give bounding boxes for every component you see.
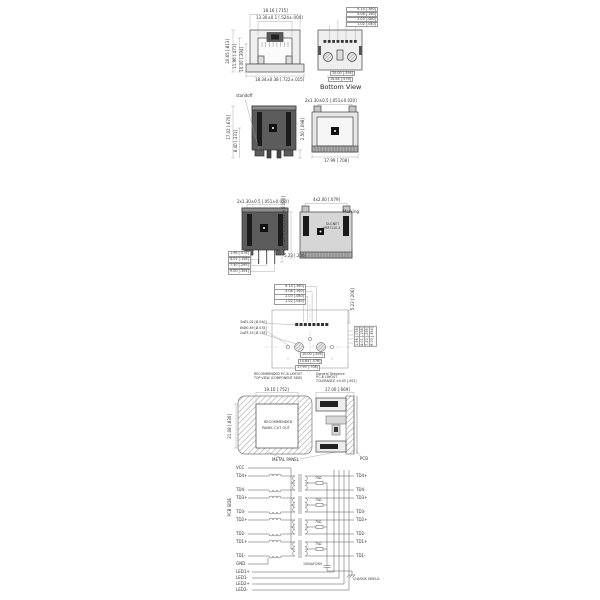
- pin-td1p-right: TD1+: [356, 540, 367, 545]
- pin-td4p-left: TD4+: [236, 474, 247, 479]
- marking-callout: Marking: [343, 210, 359, 215]
- pcb-note-left-2: TOP VIEW (COMPONENT SIDE): [254, 377, 302, 381]
- marking-text-line2: JHM7110-4: [323, 227, 340, 231]
- sideview-dim-mid: 8.40 [.331]: [234, 130, 239, 152]
- rearview-dim-top: 2x1.30±0.5 [.051±0.020]: [305, 99, 357, 104]
- pin-td2m-left: TD2-: [236, 532, 246, 537]
- panel-cutout-line2: PANEL CUT OUT: [262, 426, 290, 430]
- pcb-dim-right-top: 5.23 [.206]: [351, 288, 356, 310]
- front-dim-left-opening: 10.00 [.394]: [240, 47, 245, 72]
- schematic-lines: [248, 468, 355, 590]
- pcb-layout-pads: [295, 323, 328, 326]
- sideview2-dim-4: 9.00 [.354]: [228, 269, 251, 275]
- markingview-dim-left: 4x7.40±0.5 [.291±0.020]: [282, 196, 287, 251]
- panel-cutout-right: [316, 396, 357, 454]
- pin-gnd: GND: [236, 562, 245, 567]
- pin-td3p-right: TD3+: [356, 496, 367, 501]
- resistor-note-1: 75Ω: [315, 477, 322, 481]
- pcb-callout-2: 8xØ0.89 [Ø.035]: [240, 327, 267, 331]
- front-dim-left-body: 11.96 [.471]: [233, 44, 238, 69]
- pin-led2m: LED2-: [236, 588, 248, 593]
- rear-view-dimlines-top: [318, 104, 352, 110]
- chassis-shield-label: CHASSIS SHIELD: [353, 578, 379, 582]
- pin-td3m-left: TD3-: [236, 510, 246, 515]
- schematic-pcb-side-label: PCB SIDE: [228, 498, 233, 517]
- side-view-body: [252, 106, 296, 158]
- pcb-callout-3: 2xØ3.25 [Ø.128]: [240, 332, 267, 336]
- panel-dim-top-left: 19.10 [.752]: [264, 388, 289, 393]
- bottomview-dim-4: 1.02 [.040]: [348, 23, 376, 27]
- pcb-dim-bottom-3: 17.99 [.708]: [295, 365, 320, 371]
- pin-td1p-left: TD1+: [236, 540, 247, 545]
- resistor-note-2: 75Ω: [315, 499, 322, 503]
- pcb-label: PCB: [360, 457, 368, 462]
- pcb-callout-1: 3xØ1.02 [Ø.040]: [240, 321, 267, 325]
- pin-td2p-right: TD2+: [356, 518, 367, 523]
- bottom-view-caption: Bottom View: [320, 84, 361, 91]
- pcb-dim-right-4: 9.00 [.354]: [369, 326, 377, 347]
- pcb-dim-bottom-1: 10.00 [.394]: [300, 352, 325, 358]
- pin-td2p-left: TD2+: [236, 518, 247, 523]
- sideview-dim-height: 17.02 [.670]: [227, 115, 232, 140]
- pcb-dim-top-4: 1.02 [.040]: [276, 300, 304, 304]
- pcb-dim-bottom-2: 14.64 [.576]: [298, 359, 323, 365]
- resistor-note-3: 75Ω: [315, 521, 322, 525]
- pin-td4p-right: TD4+: [356, 474, 367, 479]
- panel-cutout-left: [238, 396, 312, 454]
- pin-led1p: LED1+: [236, 570, 250, 575]
- pin-td2m-right: TD2-: [356, 532, 366, 537]
- front-dim-bottom-width: 18.34±0.38 [.722±.015]: [255, 78, 304, 83]
- standoff-label: standoff: [236, 94, 252, 99]
- panel-dim-left: 21.08 [.830]: [228, 414, 233, 439]
- datasheet-drawing-page: 18.16 [.715] 13.30±0.1 [.524±.004] 20.65…: [0, 0, 600, 600]
- sideview2-dim-right: 5.23 [.206]: [284, 254, 306, 259]
- cap-note: 1000pF/2KV: [303, 563, 322, 567]
- pcb-note-right-3: TOLERANCE ±0.05 [.002]: [316, 380, 357, 384]
- pin-td4m-left: TD4-: [236, 488, 246, 493]
- pin-td1m-left: TD1-: [236, 554, 246, 559]
- metal-panel-label: METAL PANEL: [272, 458, 299, 463]
- front-view-body: [246, 30, 304, 72]
- pin-vcc: VCC: [236, 466, 244, 471]
- front-dim-top-opening: 13.30±0.1 [.524±.004]: [256, 16, 303, 21]
- sideview-dim-standoff: 2.50 [.098]: [301, 118, 306, 140]
- pin-led1m: LED1-: [236, 576, 248, 581]
- front-dim-top-width: 18.16 [.715]: [263, 9, 288, 14]
- pin-td3p-left: TD3+: [236, 496, 247, 501]
- pin-td1m-right: TD1-: [356, 554, 366, 559]
- rearview-dim-width: 17.99 [.708]: [324, 159, 349, 164]
- markingview-dim-top: 4x2.00 [.079]: [313, 198, 340, 203]
- pin-td3m-right: TD3-: [356, 510, 366, 515]
- pin-led2p: LED2+: [236, 582, 250, 587]
- front-dim-left-total: 20.65 [.813]: [226, 39, 231, 64]
- panel-dim-top-right: 17.00 [.669]: [325, 388, 350, 393]
- bottomview-dim-outer: 14.64 [.576]: [328, 77, 353, 83]
- resistor-note-4: 75Ω: [315, 543, 322, 547]
- panel-cutout-line1: RECOMMENDED: [264, 420, 292, 424]
- pin-td4m-right: TD4-: [356, 488, 366, 493]
- rear-view-body: [312, 106, 358, 152]
